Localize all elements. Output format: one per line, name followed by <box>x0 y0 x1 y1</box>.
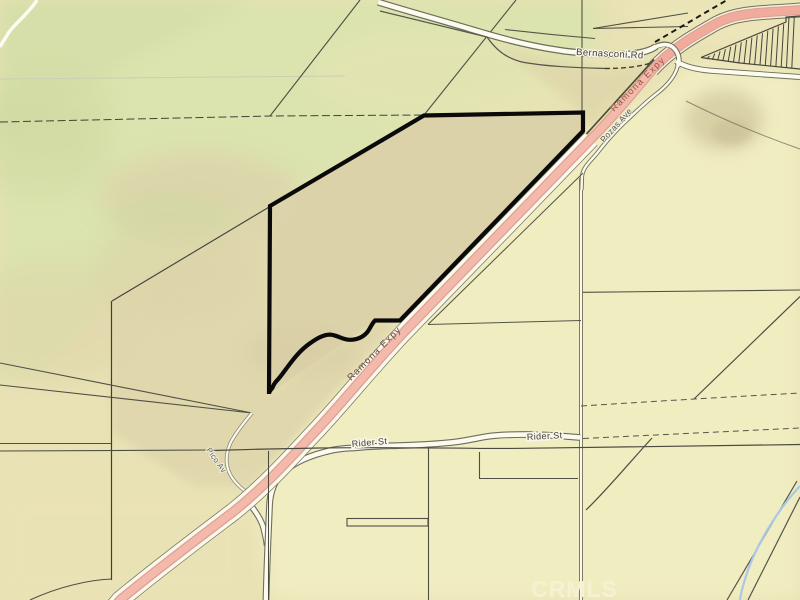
svg-text:Rider St: Rider St <box>527 430 563 442</box>
svg-text:CRMLS: CRMLS <box>531 576 618 600</box>
